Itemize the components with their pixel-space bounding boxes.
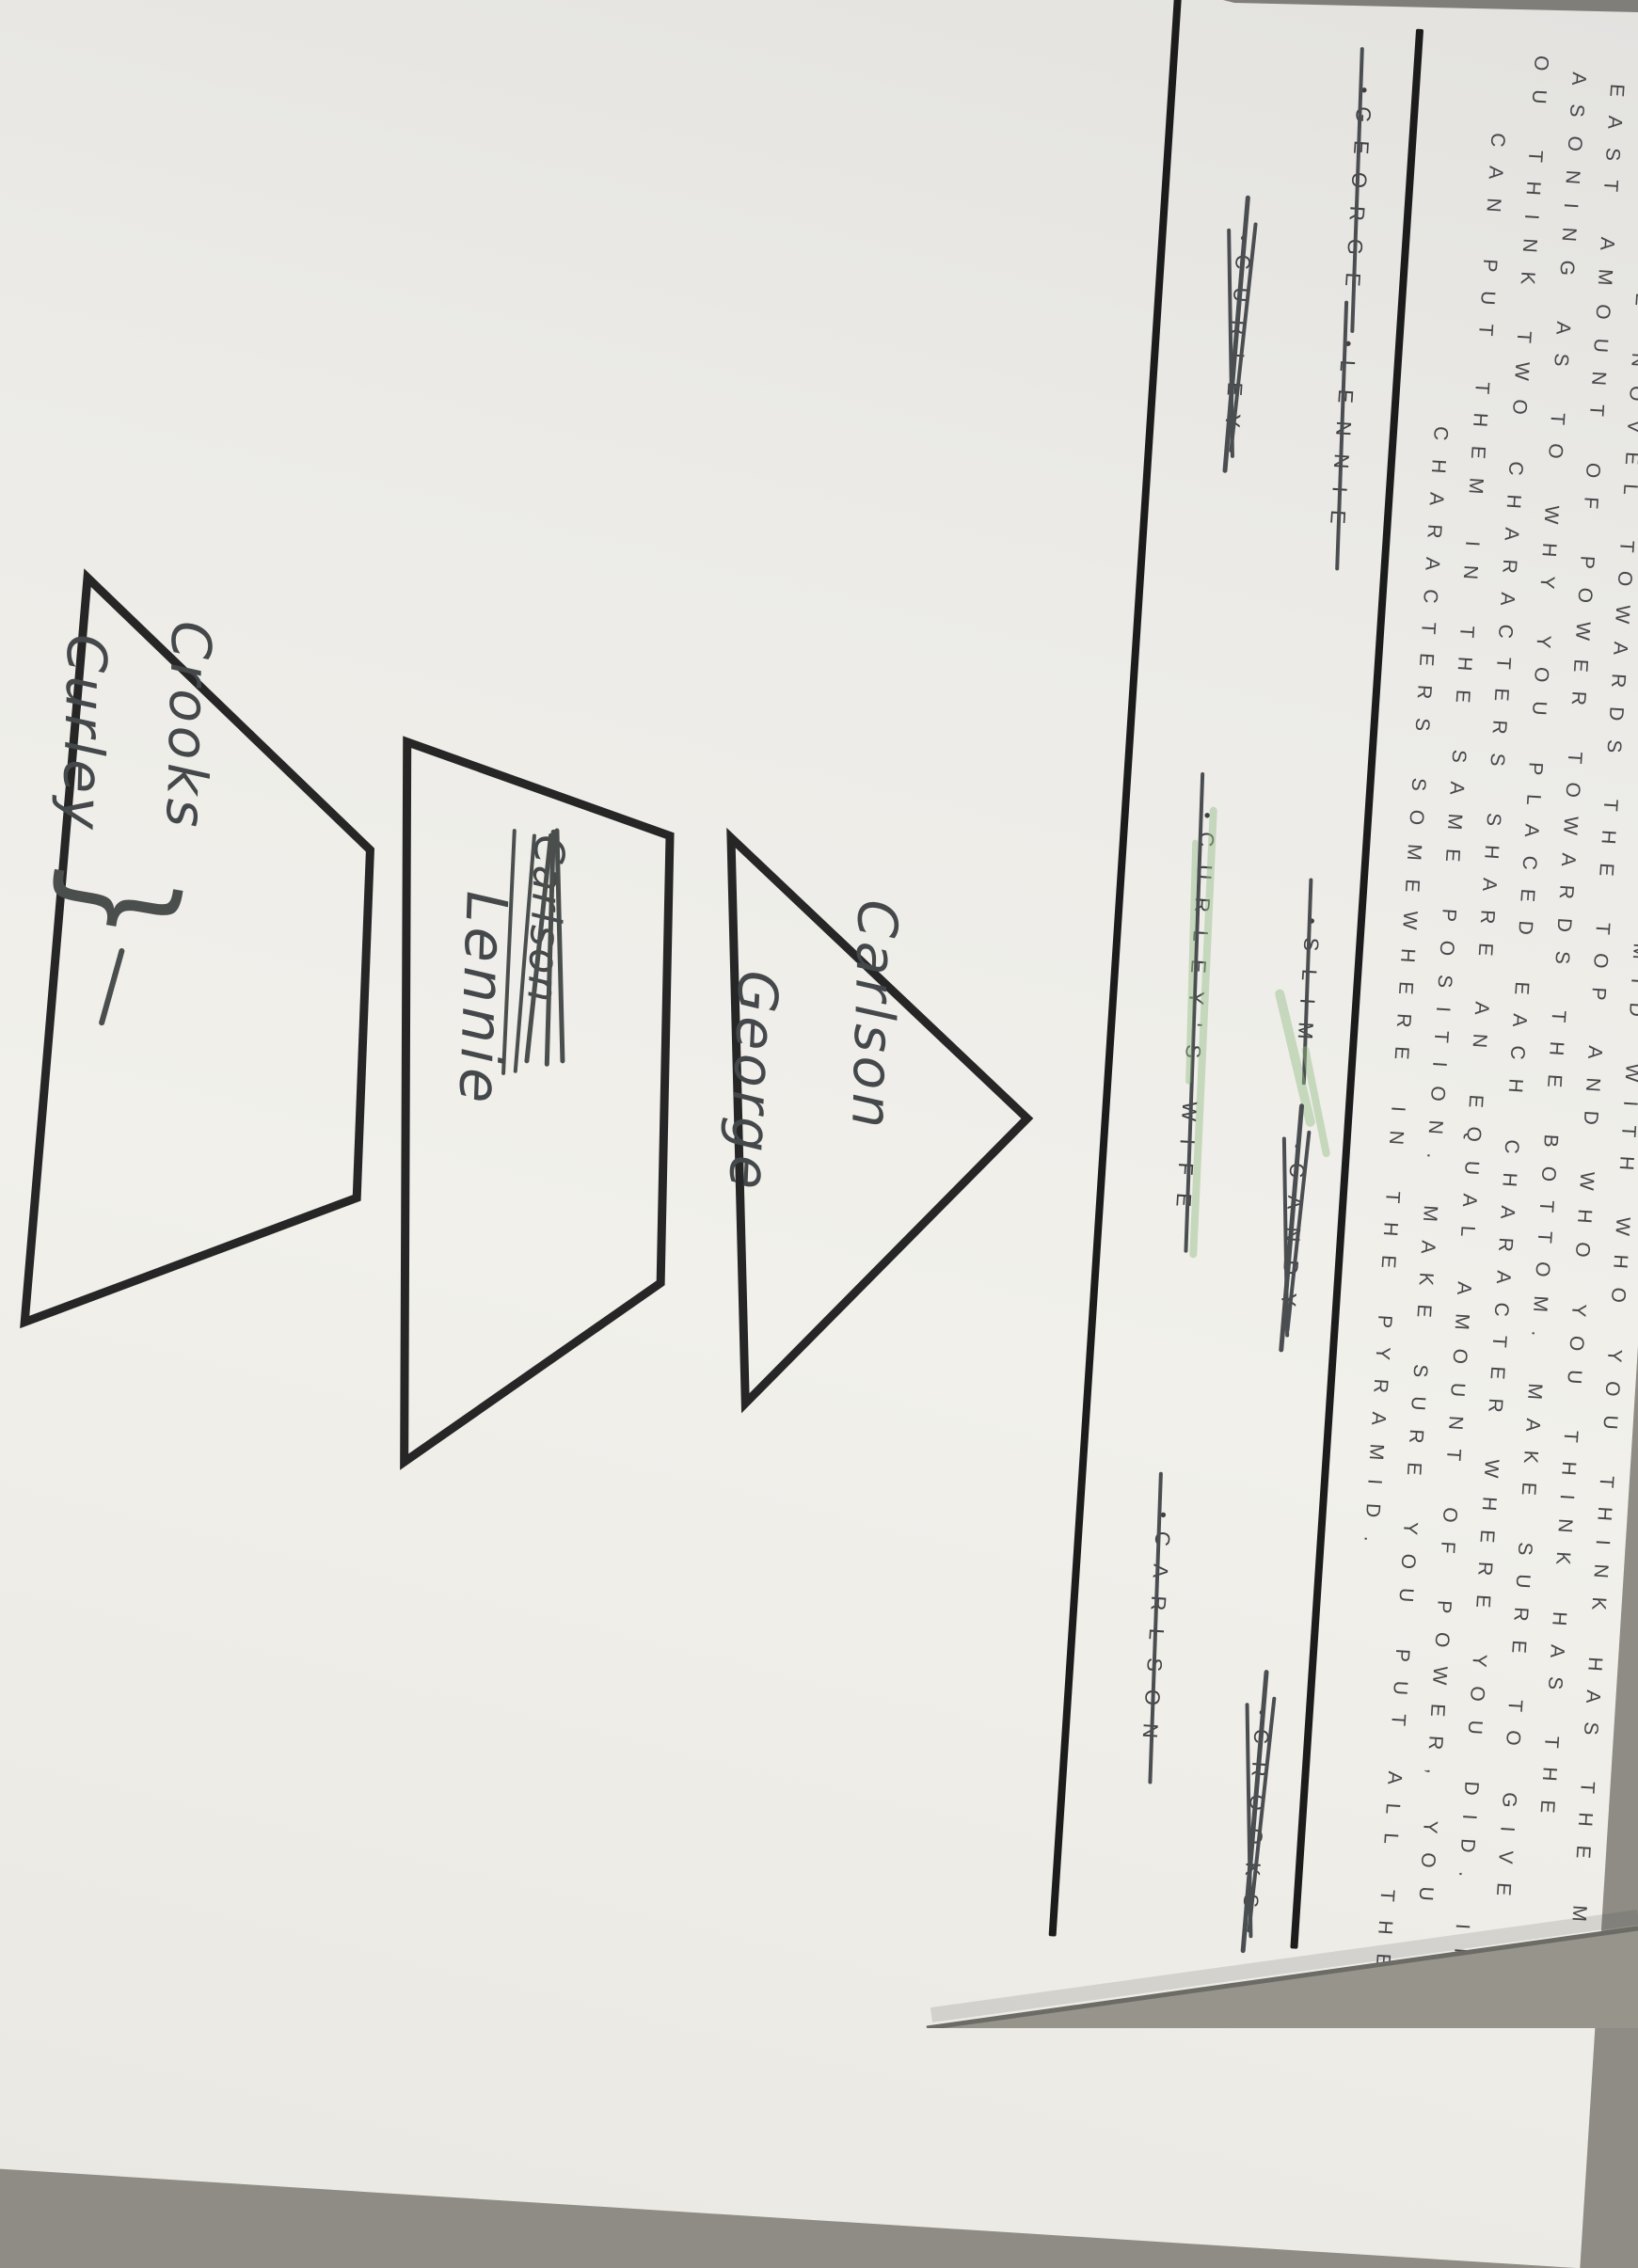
- bullet-icon: •: [1337, 340, 1358, 347]
- handwriting-tier1-carlson: Carlson: [839, 899, 910, 1133]
- word-bank-item-candy: •CANDY: [1266, 1142, 1319, 1325]
- handwriting-tier3-crooks: Crooks: [153, 620, 223, 832]
- bullet-icon: •: [1353, 87, 1374, 94]
- word-bank-item-george: •GEORGE: [1330, 86, 1385, 306]
- handwriting-tier2-lennie: Lennie: [446, 890, 519, 1108]
- handwriting-bracket-dash: [98, 947, 125, 1025]
- word-bank-item-curleys-wife: •CURLEY'S WIFE: [1161, 811, 1228, 1226]
- handwriting-tier3-curley: Curley: [50, 633, 119, 833]
- instructions-paragraph: MID WITH WHO YOU THINK HAS THE MOS E NOV…: [1580, 15, 1638, 2268]
- word-bank-item-lennie: •LENNIE: [1315, 339, 1369, 543]
- handwriting-bracket-annotation: }: [34, 852, 208, 955]
- word-bank-item-carlson: •CARLSON: [1128, 1511, 1185, 1758]
- worksheet-photo: MID WITH WHO YOU THINK HAS THE MOS E NOV…: [0, 0, 1638, 2028]
- word-bank-item-slim: •SLIM: [1283, 916, 1333, 1058]
- handwriting-tier1-george: George: [716, 969, 790, 1194]
- word-bank-item-curley: •CURLEY: [1210, 233, 1264, 447]
- word-bank-item-crooks: •CROOKS: [1229, 1708, 1283, 1927]
- worksheet-paper: MID WITH WHO YOU THINK HAS THE MOS E NOV…: [0, 0, 1638, 2268]
- bullet-icon: •: [1153, 1511, 1173, 1518]
